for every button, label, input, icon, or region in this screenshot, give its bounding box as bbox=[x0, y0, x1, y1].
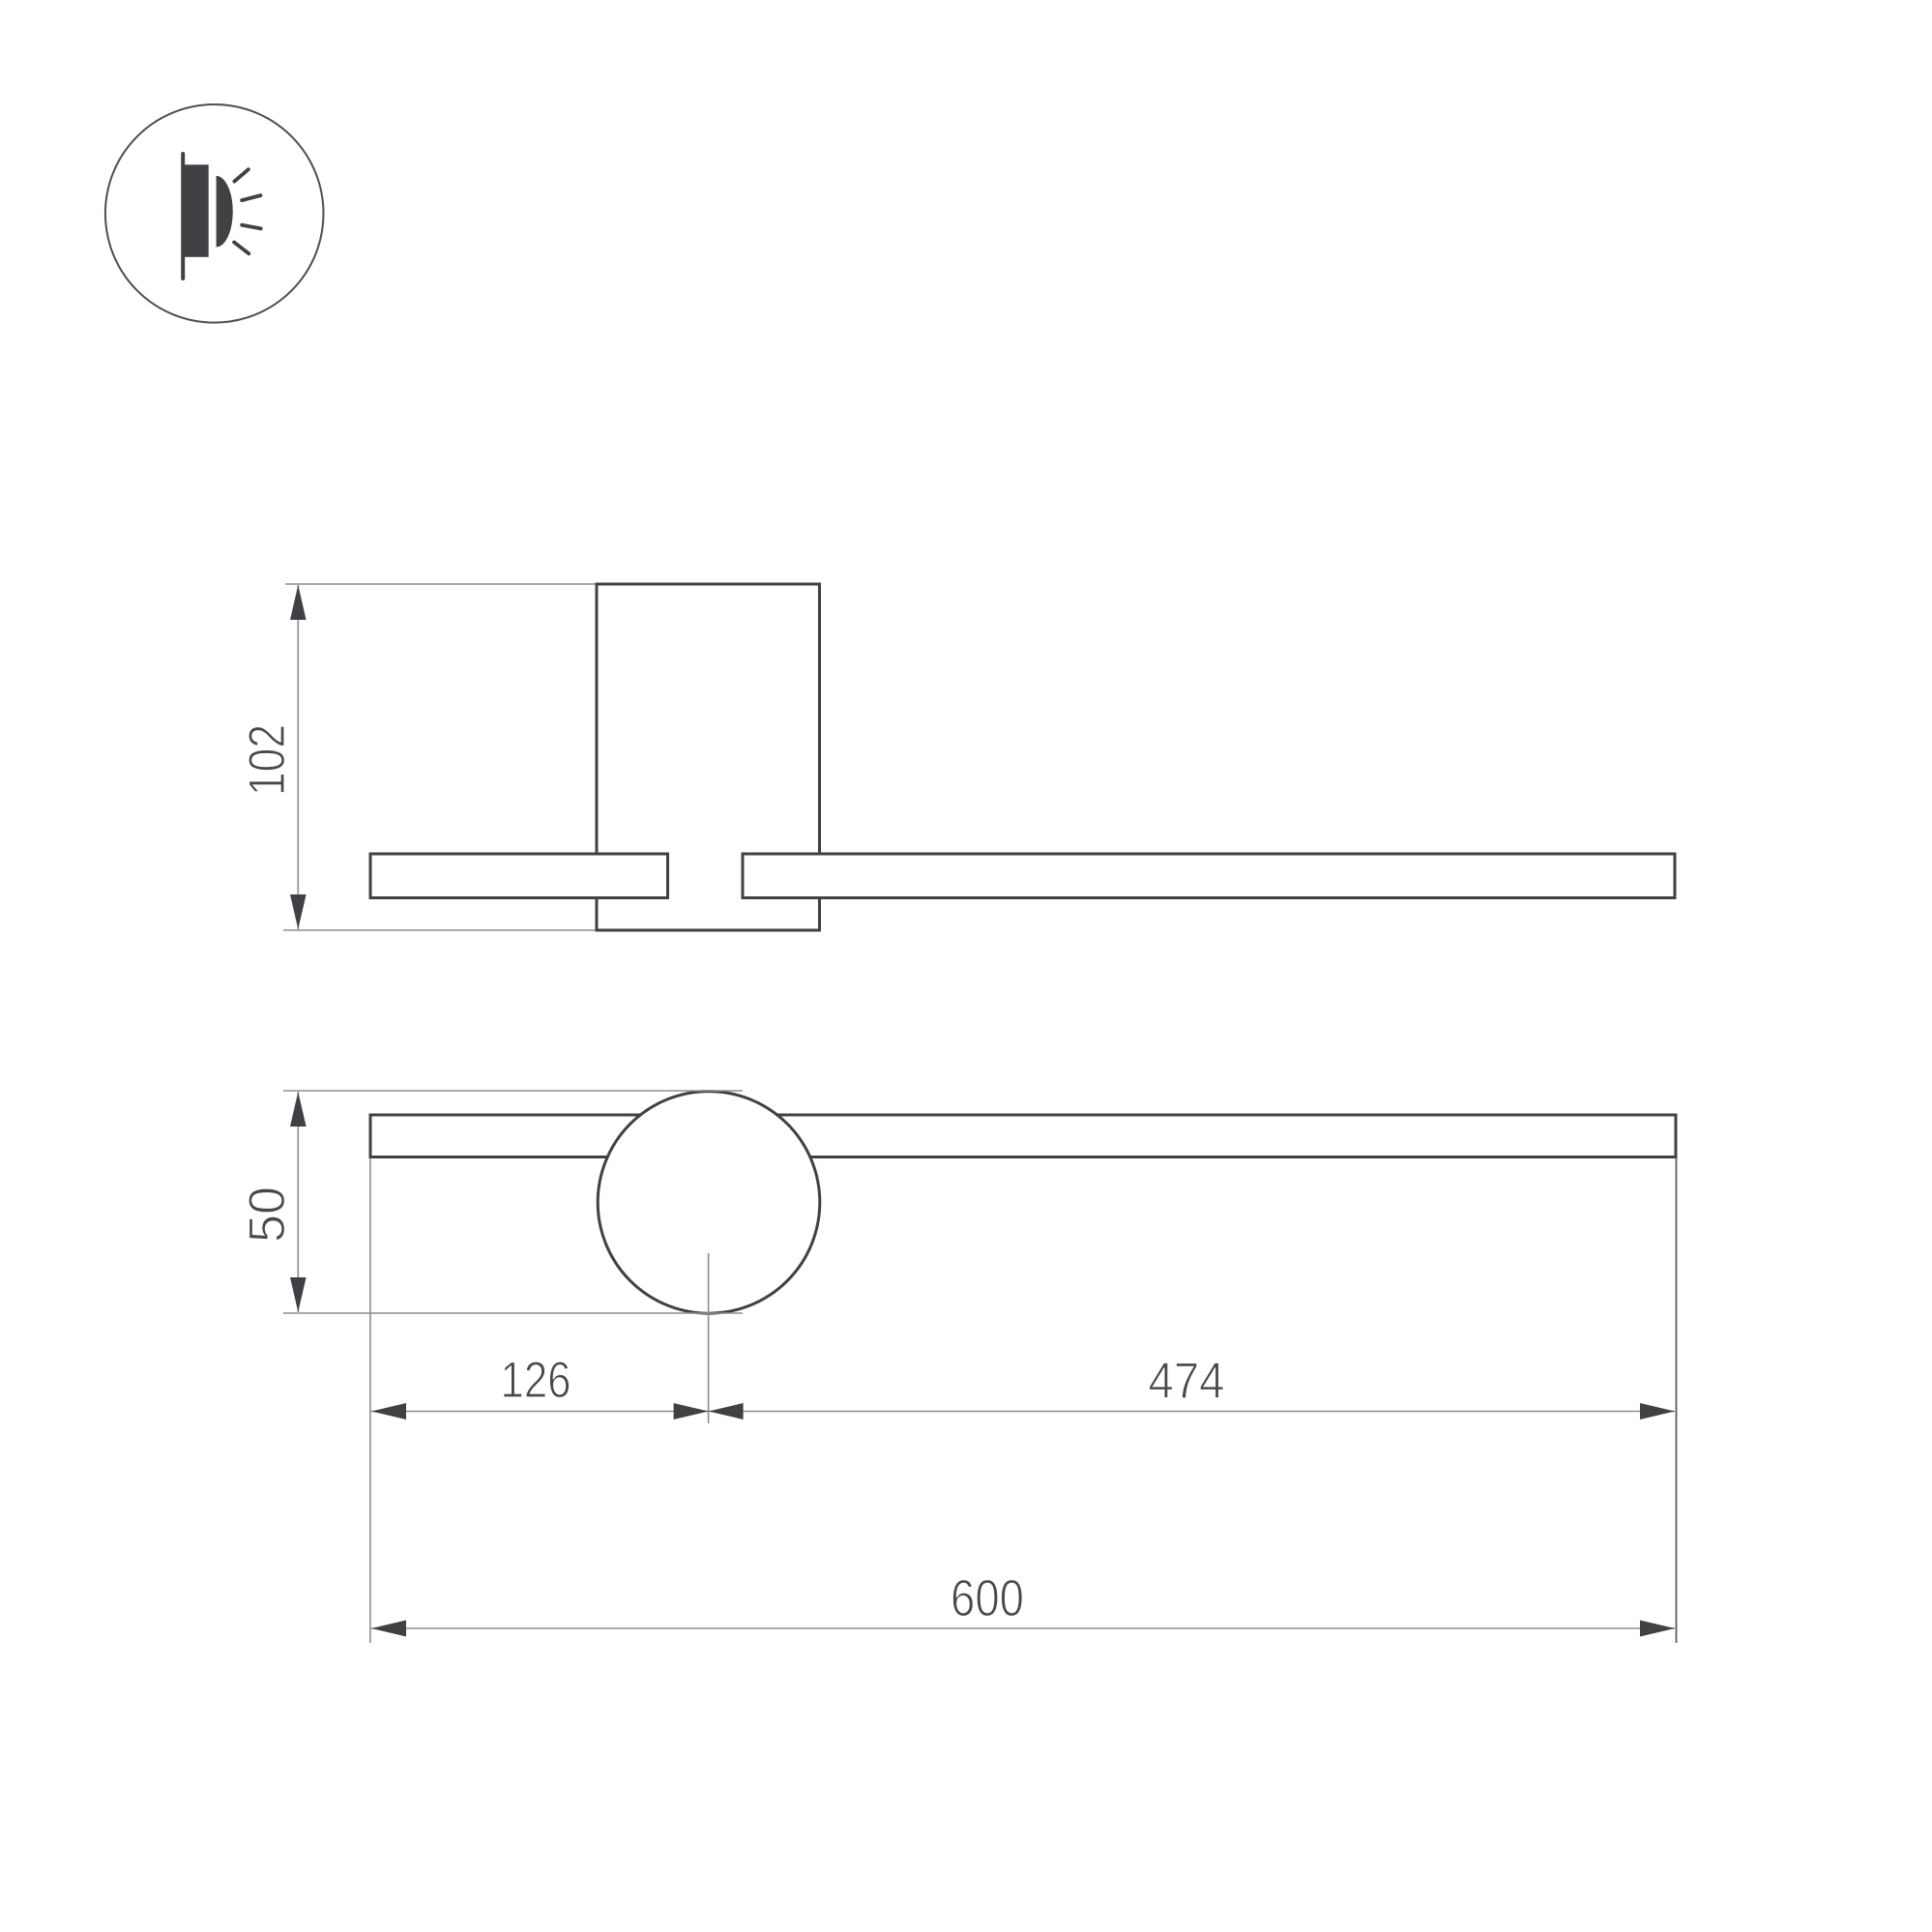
svg-text:126: 126 bbox=[501, 1352, 571, 1409]
svg-text:50: 50 bbox=[239, 1186, 296, 1243]
svg-text:102: 102 bbox=[239, 724, 296, 796]
svg-text:600: 600 bbox=[951, 1569, 1024, 1627]
svg-text:474: 474 bbox=[1149, 1353, 1225, 1410]
